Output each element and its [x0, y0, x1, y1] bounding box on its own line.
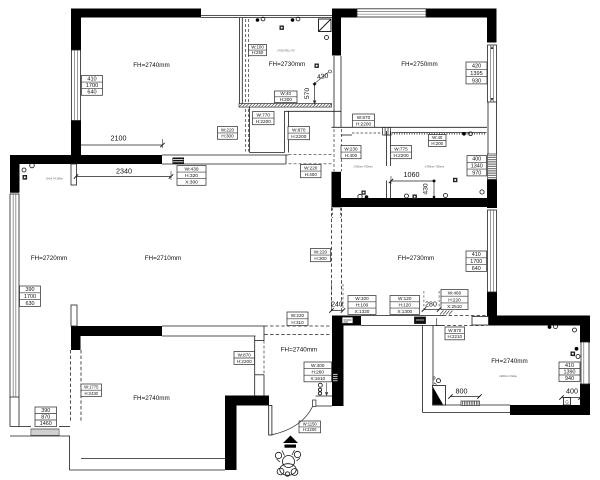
svg-text:970: 970: [472, 170, 481, 176]
svg-text:W:400: W:400: [311, 363, 325, 368]
svg-text:W:460: W:460: [448, 291, 462, 296]
svg-text:H:2200: H:2200: [303, 427, 317, 432]
svg-text:H:310: H:310: [291, 320, 304, 325]
svg-text:H:2200: H:2200: [256, 119, 272, 124]
svg-text:630: 630: [26, 301, 35, 307]
svg-text:X:1320: X:1320: [355, 309, 370, 314]
svg-text:W:220: W:220: [221, 127, 235, 132]
svg-text:G: G: [565, 400, 569, 405]
svg-text:410: 410: [472, 252, 481, 258]
svg-text:410: 410: [87, 77, 96, 83]
svg-text:W:1775: W:1775: [84, 385, 99, 390]
svg-text:940: 940: [565, 376, 574, 382]
svg-text:FH=2740mm: FH=2740mm: [133, 395, 170, 402]
svg-text:H:2210: H:2210: [447, 334, 462, 339]
svg-text:W:40: W:40: [280, 91, 291, 96]
svg-text:H:400: H:400: [345, 153, 358, 158]
svg-text:W:770: W:770: [257, 113, 271, 118]
svg-text:2100: 2100: [111, 134, 127, 143]
svg-text:H:100: H:100: [356, 303, 369, 308]
svg-text:FH=2710mm: FH=2710mm: [145, 255, 182, 262]
svg-text:W:120: W:120: [398, 296, 412, 301]
svg-text:FH=2740mm: FH=2740mm: [491, 358, 528, 365]
svg-text:W:220: W:220: [291, 313, 305, 318]
svg-text:H:2200: H:2200: [237, 359, 252, 364]
svg-text:W:40: W:40: [432, 135, 443, 140]
svg-text:X:1610: X:1610: [310, 376, 325, 381]
svg-text:H:2430: H:2430: [84, 391, 98, 396]
svg-text:FH=2740mm: FH=2740mm: [281, 347, 318, 354]
svg-text:1700: 1700: [24, 294, 36, 300]
svg-text:400: 400: [472, 157, 481, 163]
svg-text:W:220: W:220: [314, 250, 328, 255]
svg-text:2340: 2340: [116, 167, 132, 176]
svg-text:W:870: W:870: [238, 352, 252, 357]
svg-text:FH=2740mm: FH=2740mm: [133, 62, 170, 69]
svg-text:1700: 1700: [470, 259, 482, 265]
svg-text:H:2200: H:2200: [393, 153, 409, 158]
svg-text:420: 420: [472, 64, 481, 70]
svg-text:390: 390: [26, 287, 35, 293]
svg-text:1340: 1340: [471, 164, 483, 170]
svg-text:W:775: W:775: [394, 147, 408, 152]
svg-text:1060: 1060: [404, 170, 420, 179]
svg-text:W:100: W:100: [251, 45, 264, 50]
svg-text:H:2200: H:2200: [356, 122, 372, 127]
svg-text:W:100: W:100: [355, 296, 369, 301]
svg-text:1390: 1390: [564, 369, 576, 375]
svg-text:H:300: H:300: [314, 256, 327, 261]
svg-text:FH=2730mm: FH=2730mm: [398, 255, 435, 262]
svg-text:W:220: W:220: [304, 166, 318, 171]
svg-text:H:220: H:220: [448, 297, 461, 302]
svg-text:≥750mm 750mm: ≥750mm 750mm: [353, 165, 372, 169]
svg-text:1460: 1460: [40, 421, 52, 427]
svg-text:H:320: H:320: [185, 173, 198, 179]
svg-text:X:2510: X:2510: [447, 304, 462, 309]
svg-text:410: 410: [565, 363, 574, 369]
svg-text:W:870: W:870: [292, 128, 306, 133]
svg-text:W:870: W:870: [357, 115, 371, 120]
svg-text:X:1300: X:1300: [397, 309, 412, 314]
svg-text:FH=2750mm: FH=2750mm: [401, 61, 438, 68]
svg-text:FH=2730mm: FH=2730mm: [269, 61, 306, 68]
svg-text:≥750mm 750mm: ≥750mm 750mm: [425, 165, 444, 169]
svg-text:430: 430: [423, 183, 430, 195]
svg-text:H:2200: H:2200: [291, 134, 307, 139]
svg-text:930: 930: [472, 78, 481, 84]
svg-text:≥900mm Today: ≥900mm Today: [499, 374, 517, 378]
svg-text:W:1150: W:1150: [303, 421, 318, 426]
svg-text:W:230: W:230: [344, 147, 358, 152]
svg-text:400: 400: [566, 387, 578, 396]
svg-text:570: 570: [304, 88, 311, 100]
svg-text:≥750+TEL+TV: ≥750+TEL+TV: [277, 49, 295, 53]
svg-text:X:300: X:300: [185, 180, 198, 186]
svg-text:H:250: H:250: [252, 50, 264, 55]
svg-text:H:400: H:400: [305, 172, 318, 177]
svg-text:H:260: H:260: [311, 370, 324, 375]
svg-text:390: 390: [41, 408, 50, 414]
svg-text:640: 640: [87, 90, 96, 96]
svg-text:H:300: H:300: [221, 134, 234, 139]
svg-text:800: 800: [456, 387, 468, 396]
svg-text:H:200: H:200: [280, 97, 293, 102]
svg-text:H:120: H:120: [398, 303, 411, 308]
svg-text:280: 280: [425, 302, 437, 309]
svg-text:FH=2720mm: FH=2720mm: [31, 255, 68, 262]
svg-text:W:870: W:870: [448, 328, 461, 333]
svg-text:240: 240: [331, 302, 343, 309]
svg-text:640: 640: [472, 266, 481, 272]
svg-text:870: 870: [41, 414, 50, 420]
svg-text:1700: 1700: [86, 83, 98, 89]
svg-text:H:200: H:200: [431, 141, 443, 146]
svg-text:W:430: W:430: [184, 167, 198, 173]
svg-text:1395: 1395: [470, 71, 482, 77]
svg-text:S=14.74 290m: S=14.74 290m: [46, 177, 63, 181]
